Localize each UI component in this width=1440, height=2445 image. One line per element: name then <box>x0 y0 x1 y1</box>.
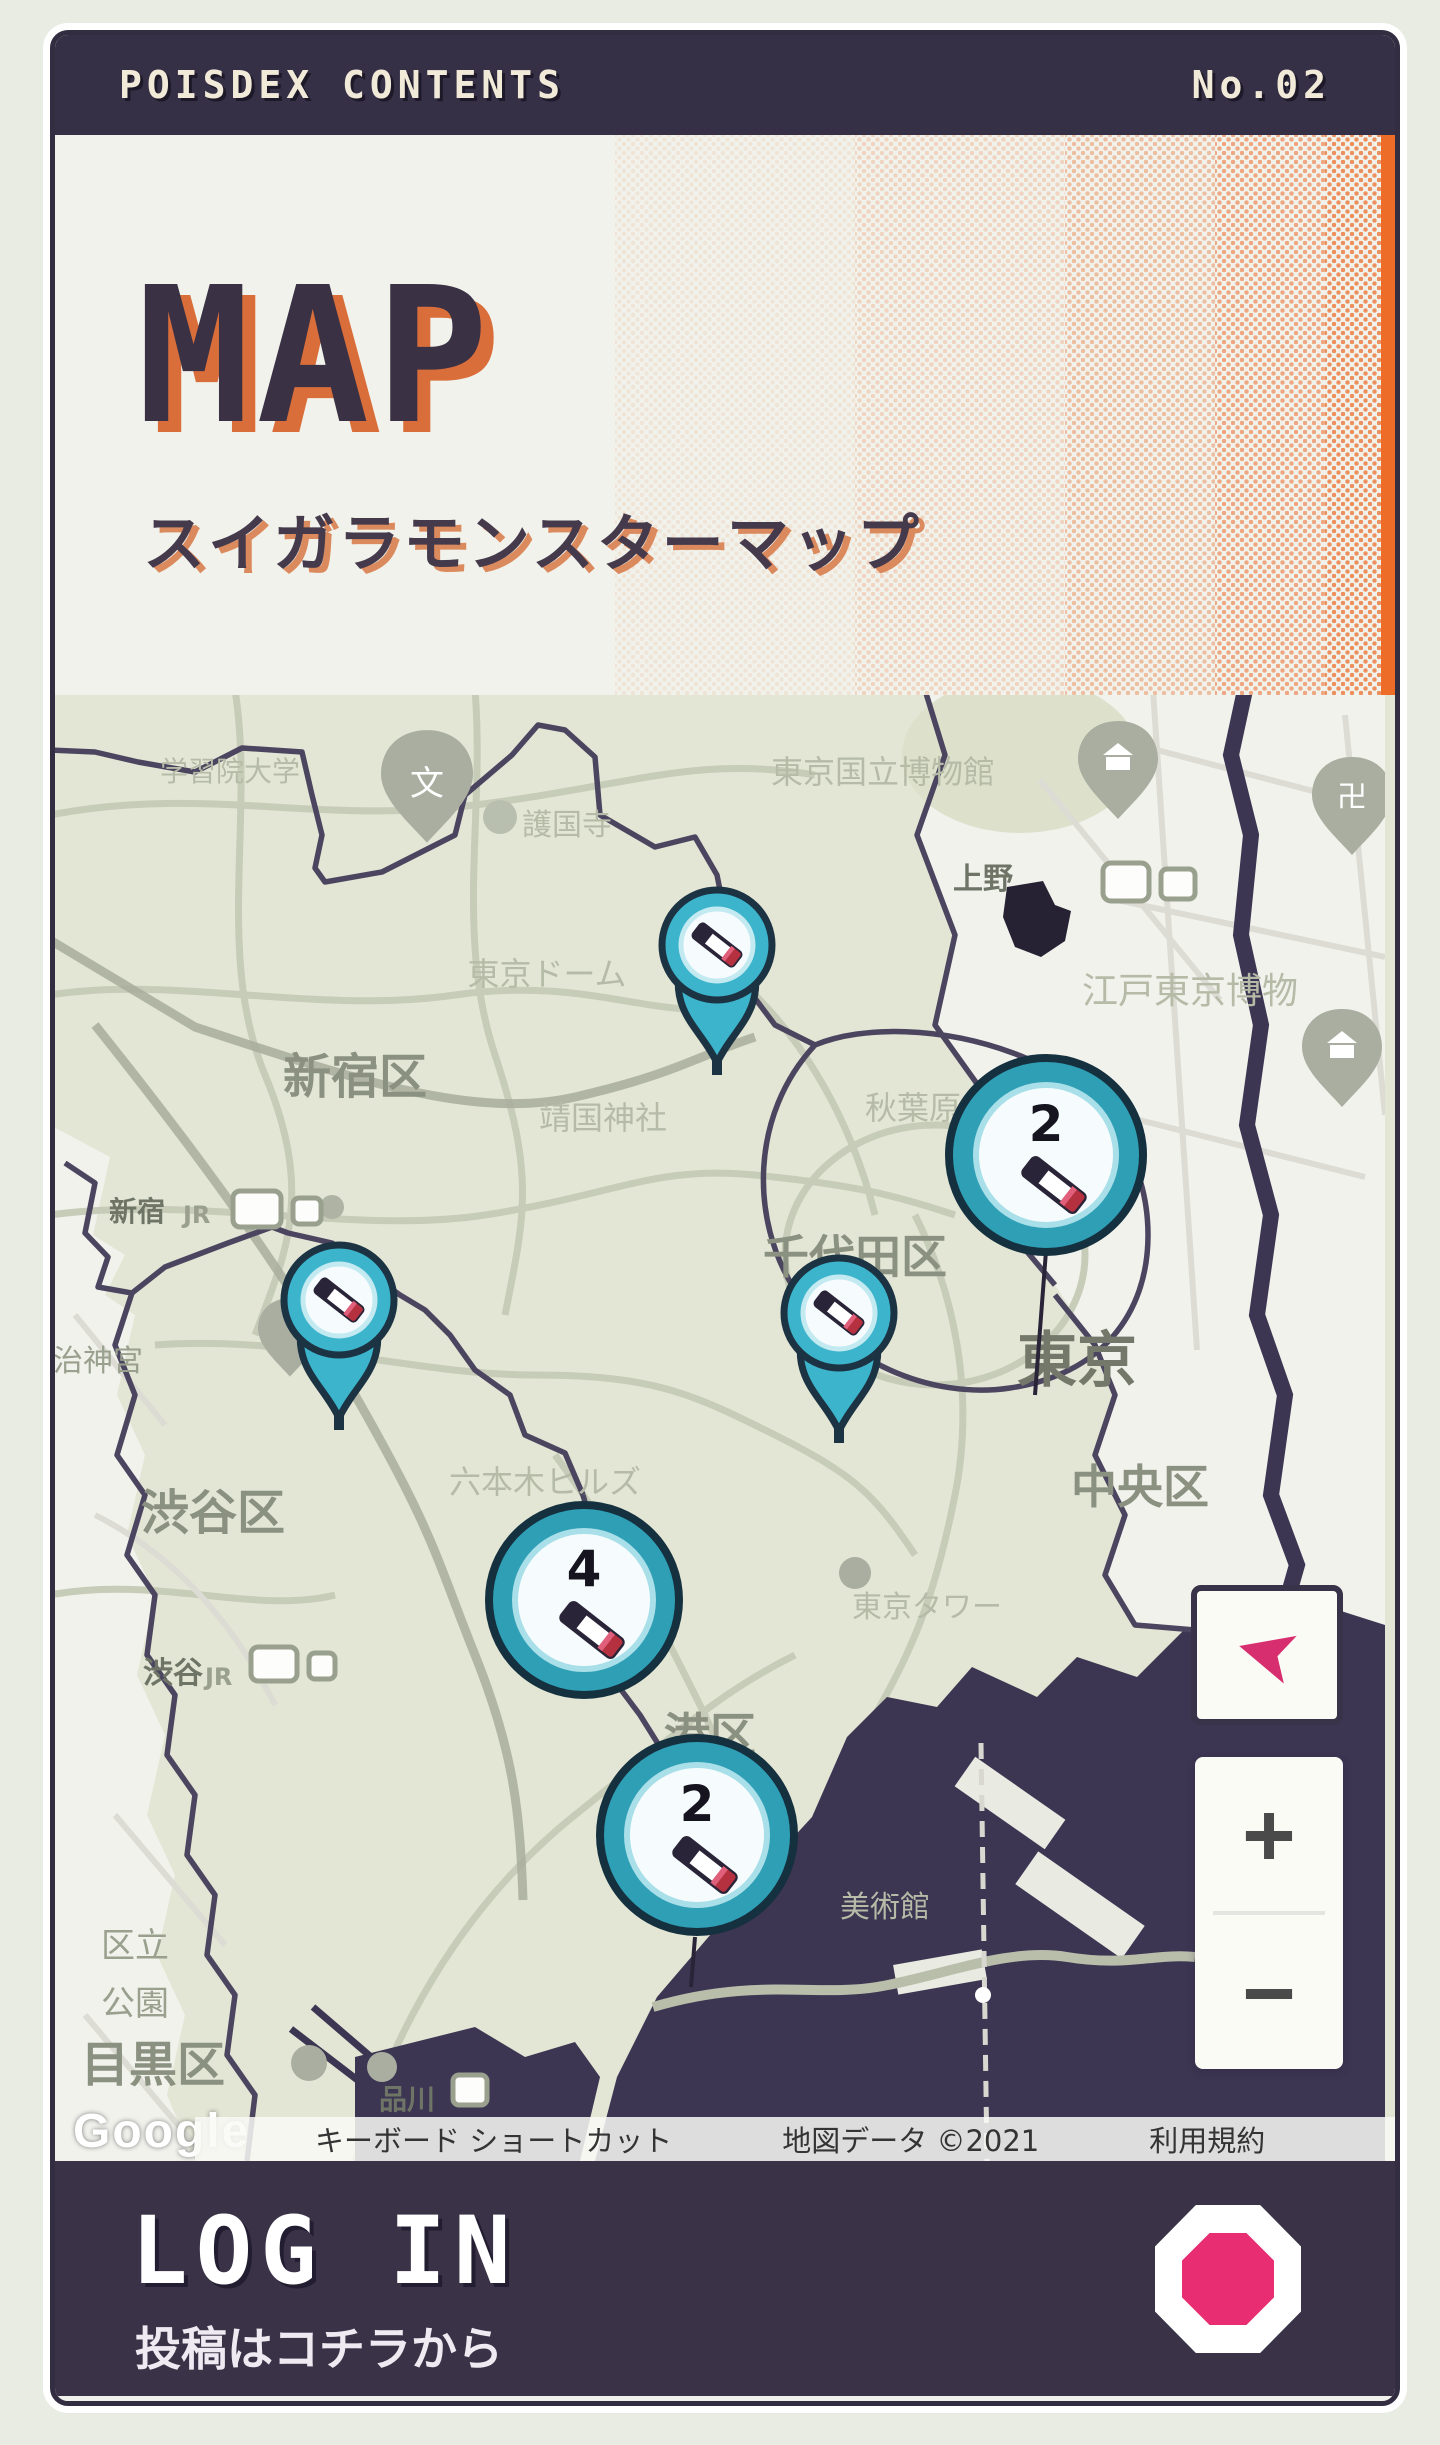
svg-text:渋谷: 渋谷 <box>143 1656 203 1691</box>
svg-text:明治神宮: 明治神宮 <box>55 1344 143 1379</box>
school-icon: 文 <box>410 764 444 804</box>
svg-text:東京国立博物館: 東京国立博物館 <box>771 753 995 791</box>
svg-text:区立: 区立 <box>101 1926 169 1966</box>
cluster-pin[interactable]: 2 <box>600 1738 794 1932</box>
svg-text:美術館: 美術館 <box>840 1890 930 1925</box>
cluster-count: 2 <box>680 1775 715 1833</box>
svg-text:東京タワー: 東京タワー <box>852 1590 1002 1625</box>
login-button-icon <box>1182 2233 1274 2325</box>
zoom-control: + − <box>1195 1757 1343 2069</box>
navigation-arrow-icon: ➤ <box>1225 1609 1308 1701</box>
map-graphic: 卍 文 JR JR <box>55 695 1385 2161</box>
keyboard-shortcuts-link[interactable]: キーボード ショートカット <box>315 2118 672 2160</box>
terms-link[interactable]: 利用規約 <box>1149 2118 1265 2160</box>
header-section: MAP スイガラモンスターマップ <box>55 135 1395 695</box>
zoom-in-button[interactable]: + <box>1195 1757 1343 1911</box>
svg-text:学習院大学: 学習院大学 <box>160 755 300 788</box>
login-title[interactable]: LOG IN <box>131 2197 519 2306</box>
svg-text:中央区: 中央区 <box>1071 1460 1209 1514</box>
halftone-band <box>1215 135 1325 695</box>
svg-text:護国寺: 護国寺 <box>522 808 612 843</box>
login-button[interactable] <box>1155 2205 1301 2353</box>
map-data-copyright: 地図データ ©2021 <box>782 2118 1039 2160</box>
svg-text:新宿: 新宿 <box>109 1195 165 1228</box>
svg-text:六本木ヒルズ: 六本木ヒルズ <box>449 1463 641 1501</box>
cluster-count: 4 <box>567 1540 602 1598</box>
svg-text:江戸東京博物: 江戸東京博物 <box>1082 971 1298 1012</box>
temple-icon: 卍 <box>1337 780 1367 815</box>
cluster-pin[interactable]: 4 <box>489 1505 679 1695</box>
svg-text:公園: 公園 <box>101 1984 169 2024</box>
svg-text:JR: JR <box>203 1663 232 1691</box>
halftone-band <box>1325 135 1385 695</box>
map-canvas[interactable]: 卍 文 JR JR <box>55 695 1395 2161</box>
page-title: MAP <box>137 263 495 451</box>
page: POISDEX CONTENTS No.02 MAP スイガラモンスターマップ <box>0 0 1440 2445</box>
svg-text:JR: JR <box>181 1201 210 1229</box>
compass-button[interactable]: ➤ <box>1191 1585 1343 1725</box>
halftone-band <box>615 135 855 695</box>
halftone-band <box>855 135 1065 695</box>
bay-dot <box>975 1987 991 2003</box>
poisdex-card: POISDEX CONTENTS No.02 MAP スイガラモンスターマップ <box>50 30 1400 2406</box>
svg-text:上野: 上野 <box>953 862 1013 897</box>
top-bar: POISDEX CONTENTS No.02 <box>55 35 1395 135</box>
page-number: No.02 <box>1192 63 1331 107</box>
top-bar-title: POISDEX CONTENTS <box>119 63 565 107</box>
svg-text:目黒区: 目黒区 <box>81 2037 225 2093</box>
svg-text:新宿区: 新宿区 <box>283 1049 427 1105</box>
halftone-band <box>1065 135 1215 695</box>
footer-section: LOG IN 投稿はコチラから <box>55 2161 1395 2396</box>
svg-text:秋葉原: 秋葉原 <box>865 1089 961 1127</box>
map-attribution: キーボード ショートカット 地図データ ©2021 利用規約 <box>195 2117 1395 2161</box>
svg-text:東京ドーム: 東京ドーム <box>467 955 626 993</box>
zoom-out-button[interactable]: − <box>1195 1915 1343 2069</box>
cluster-count: 2 <box>1029 1095 1064 1153</box>
svg-text:靖国神社: 靖国神社 <box>539 1099 667 1137</box>
svg-text:渋谷区: 渋谷区 <box>141 1485 285 1541</box>
cluster-pin[interactable]: 2 <box>949 1058 1143 1252</box>
login-subtitle: 投稿はコチラから <box>135 2313 503 2379</box>
page-subtitle: スイガラモンスターマップ <box>143 493 922 583</box>
svg-text:品川: 品川 <box>379 2083 435 2116</box>
orange-edge-strip <box>1381 135 1395 695</box>
